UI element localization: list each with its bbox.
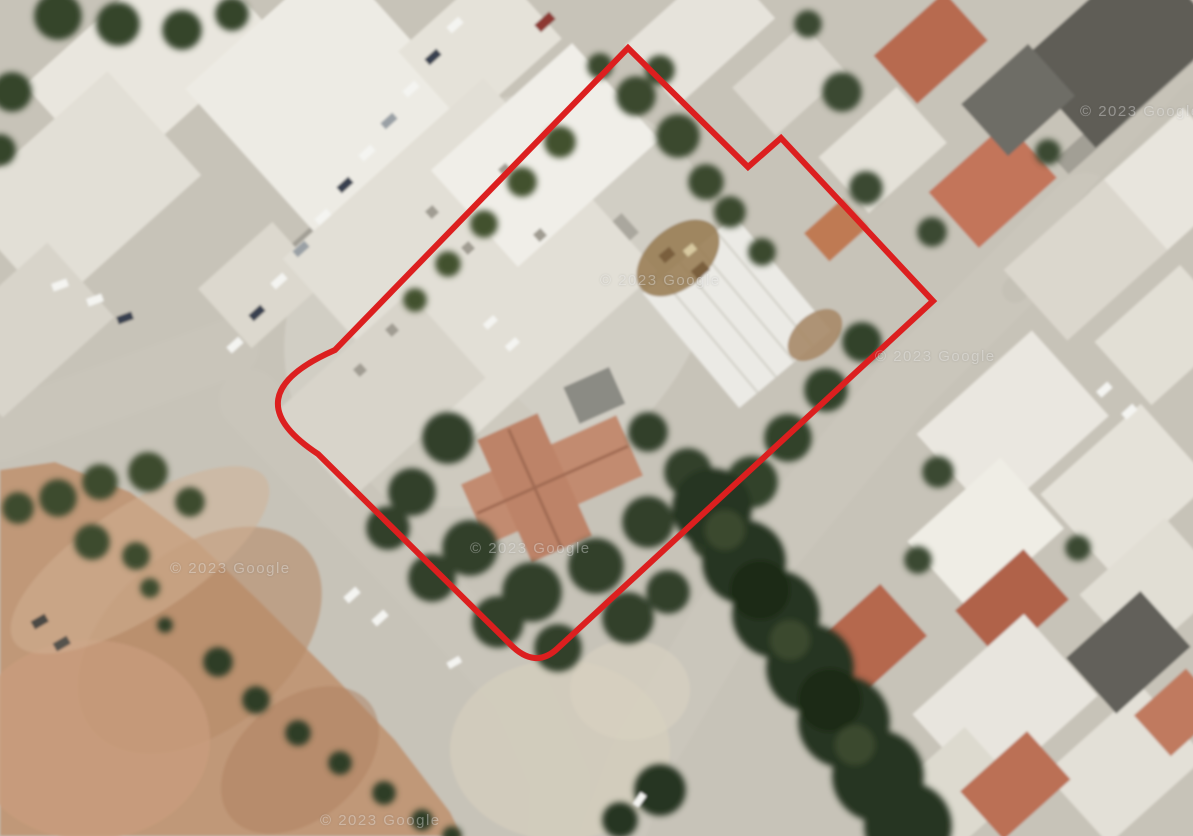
scene-layer [0,0,1193,836]
satellite-map-view[interactable]: © 2023 Google © 2023 Google © 2023 Googl… [0,0,1193,836]
satellite-scene [0,0,1193,836]
